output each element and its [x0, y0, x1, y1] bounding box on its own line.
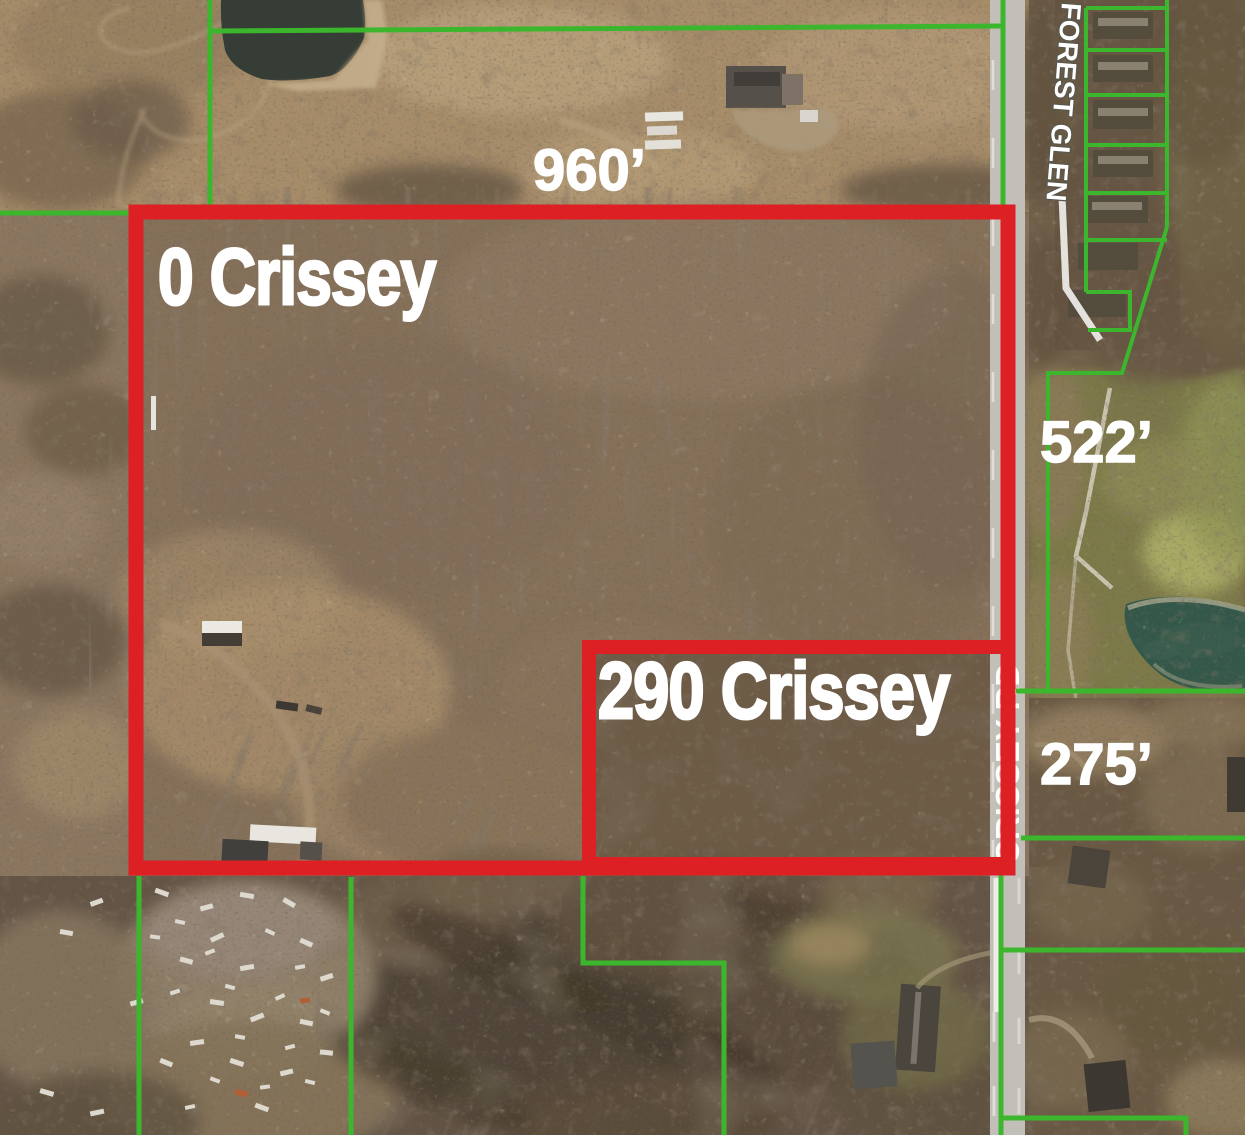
svg-text:275’: 275’ [1040, 732, 1153, 797]
svg-text:0 Crissey: 0 Crissey [158, 232, 436, 321]
svg-text:290 Crissey: 290 Crissey [598, 647, 951, 736]
svg-text:522’: 522’ [1040, 410, 1153, 475]
svg-text:960’: 960’ [533, 138, 646, 203]
